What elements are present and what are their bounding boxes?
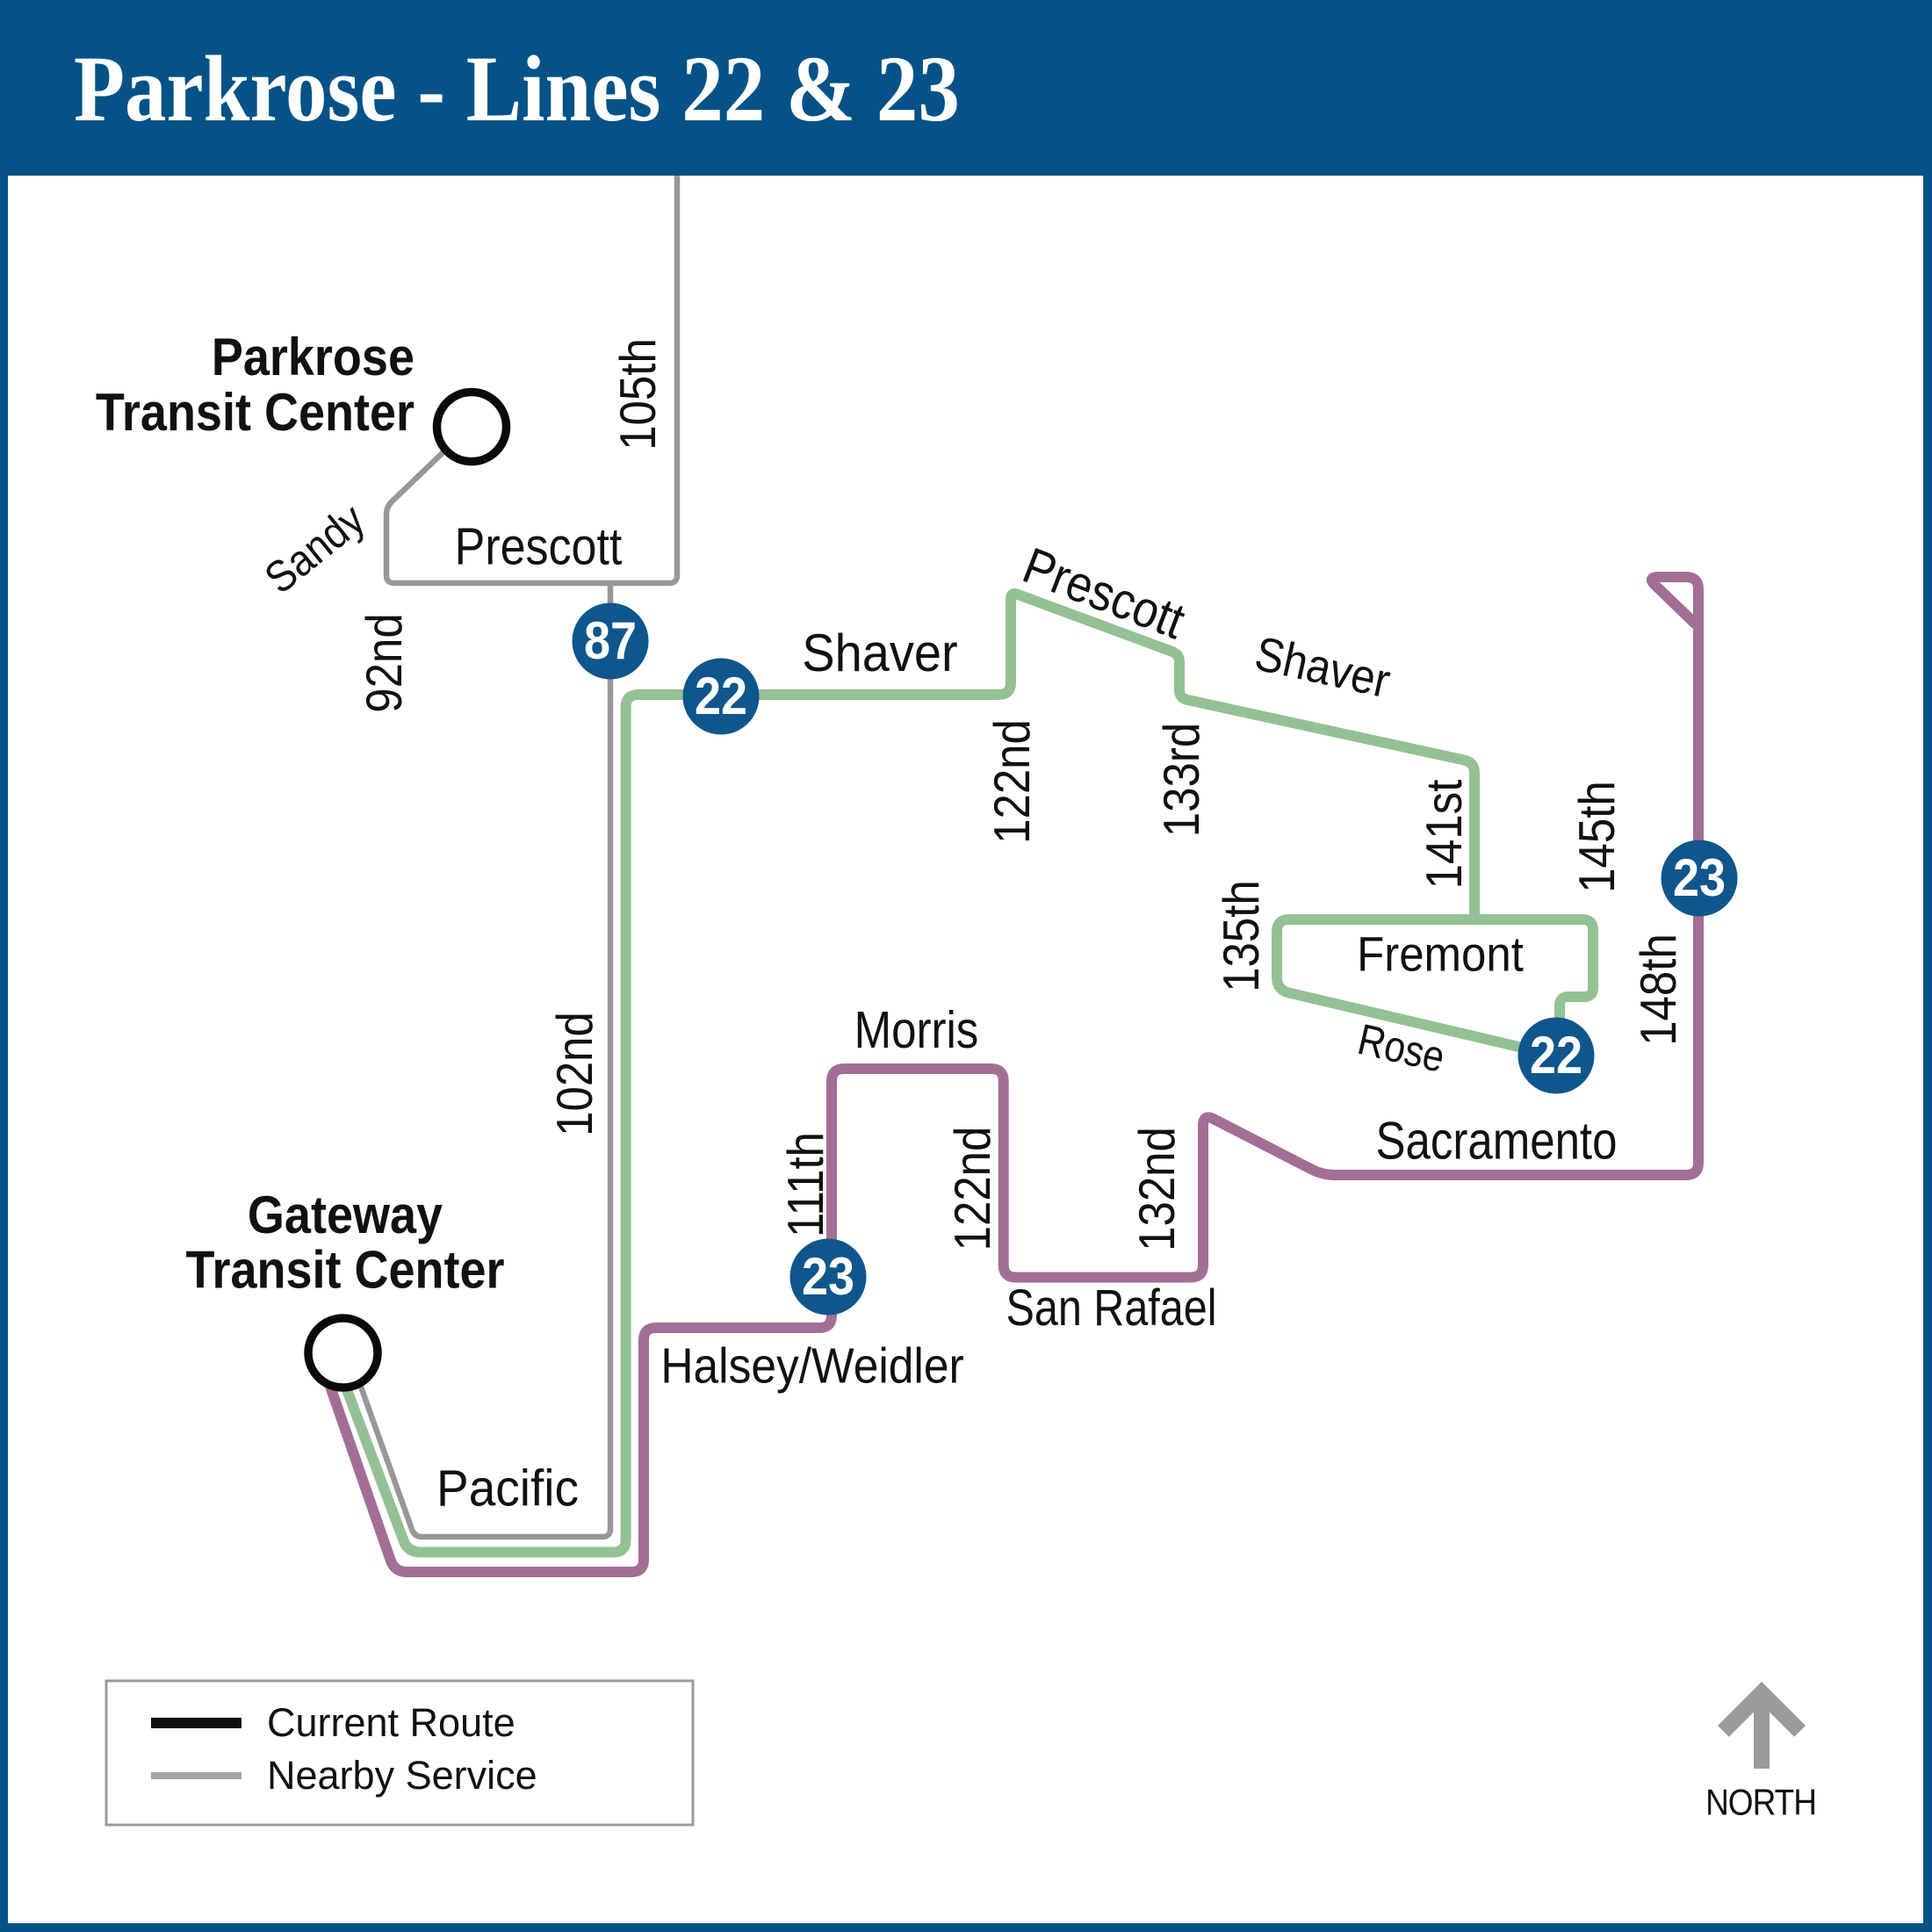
svg-text:NORTH: NORTH — [1705, 1783, 1816, 1823]
svg-text:Nearby Service: Nearby Service — [267, 1753, 537, 1798]
svg-text:Sacramento: Sacramento — [1376, 1112, 1618, 1171]
svg-text:87: 87 — [584, 611, 637, 671]
svg-text:Prescott: Prescott — [455, 516, 623, 575]
svg-text:23: 23 — [802, 1247, 854, 1307]
svg-text:122nd: 122nd — [984, 719, 1041, 844]
svg-text:145th: 145th — [1568, 781, 1626, 893]
svg-text:Parkrose - Lines 22 & 23: Parkrose - Lines 22 & 23 — [74, 37, 960, 141]
svg-text:Parkrose: Parkrose — [212, 328, 415, 387]
svg-text:Current Route: Current Route — [267, 1700, 515, 1745]
svg-text:Shaver: Shaver — [802, 624, 957, 682]
svg-text:135th: 135th — [1213, 880, 1270, 992]
svg-text:Gateway: Gateway — [248, 1186, 443, 1245]
svg-text:22: 22 — [1530, 1026, 1582, 1085]
svg-text:Morris: Morris — [854, 1000, 979, 1059]
svg-text:San Rafael: San Rafael — [1006, 1280, 1217, 1337]
svg-text:Halsey/Weidler: Halsey/Weidler — [660, 1338, 963, 1394]
svg-text:133rd: 133rd — [1153, 723, 1210, 837]
svg-text:92nd: 92nd — [356, 613, 413, 712]
svg-text:111th: 111th — [777, 1132, 834, 1237]
svg-text:Pacific: Pacific — [436, 1460, 579, 1517]
svg-text:23: 23 — [1673, 848, 1726, 908]
svg-text:Transit Center: Transit Center — [185, 1241, 504, 1301]
svg-text:102nd: 102nd — [546, 1012, 603, 1136]
svg-text:141st: 141st — [1416, 780, 1473, 890]
svg-text:22: 22 — [695, 667, 747, 726]
svg-text:Fremont: Fremont — [1357, 927, 1524, 981]
svg-text:105th: 105th — [609, 338, 667, 451]
svg-text:132nd: 132nd — [1128, 1127, 1186, 1251]
svg-text:Transit Center: Transit Center — [96, 383, 415, 443]
svg-text:122nd: 122nd — [944, 1127, 1001, 1251]
svg-text:148th: 148th — [1630, 934, 1687, 1046]
